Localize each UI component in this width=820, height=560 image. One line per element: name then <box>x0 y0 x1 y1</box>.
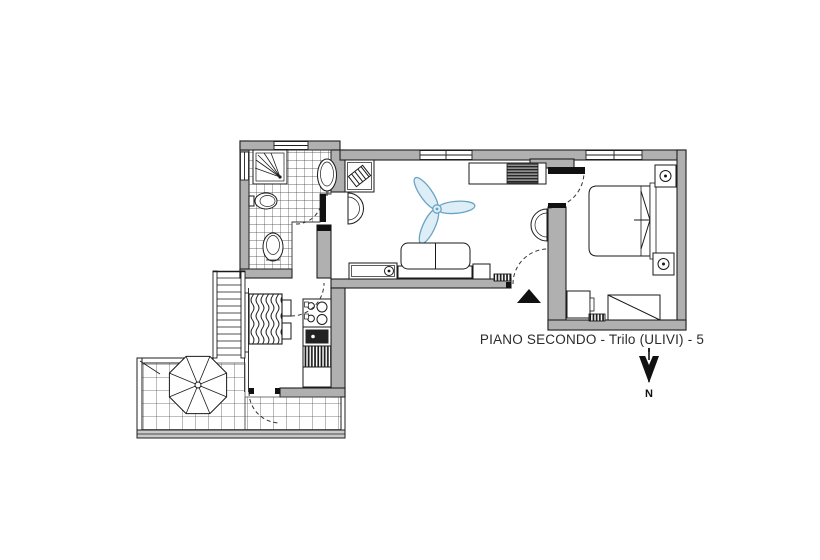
dining-table-icon <box>249 294 291 344</box>
jamb-partition-top <box>548 203 566 208</box>
bedroom <box>567 165 676 321</box>
washing-machine-icon <box>345 160 374 192</box>
jamb-bathroom-lower <box>317 225 331 231</box>
wall-bathroom-bottom <box>240 269 292 278</box>
bathroom-door-leaf <box>320 194 326 222</box>
living-room <box>345 160 547 281</box>
tv-unit-icon <box>349 263 397 279</box>
north-label: N <box>645 388 653 400</box>
floor-plan-page: PIANO SECONDO - Trilo (ULIVI) - 5 N <box>0 0 820 560</box>
radiator-bedroom-icon <box>589 314 605 321</box>
shower-icon <box>253 150 287 184</box>
plan-title: PIANO SECONDO - Trilo (ULIVI) - 5 <box>480 332 704 347</box>
wall-bedroom-bottom <box>548 320 686 330</box>
dishwasher-icon <box>303 346 331 367</box>
window-bathroom-top <box>274 141 308 150</box>
door-swing-bedroom <box>548 172 584 208</box>
staircase-icon <box>213 271 245 358</box>
kitchen <box>249 294 331 387</box>
kitchen-sink-icon <box>303 327 331 346</box>
wardrobe-icon <box>469 163 546 184</box>
kitchen-counter <box>303 367 331 387</box>
window-living-top <box>420 150 472 160</box>
umbrella-icon <box>169 356 226 413</box>
toilet-icon <box>263 233 283 261</box>
lintel-bedroom-door <box>548 167 585 174</box>
window-bedroom-top <box>586 150 642 160</box>
nightstand-bottom <box>653 253 674 275</box>
terrace-tiles <box>245 397 341 430</box>
entrance-arrow-icon <box>517 289 541 303</box>
jamb-terrace-left <box>249 388 254 394</box>
corner-basin-left-icon <box>348 193 364 224</box>
door-swing-entrance <box>513 249 548 284</box>
jamb-terrace-right <box>275 388 280 394</box>
double-bed-icon <box>589 183 656 259</box>
corner-basin-bedroom-wall-icon <box>531 209 547 241</box>
radiator-living-icon <box>494 274 511 281</box>
single-bed-icon <box>608 295 660 320</box>
wall-kitchen-bottom <box>280 388 345 397</box>
jamb-entrance-left <box>506 282 511 288</box>
wall-partition-bedroom <box>548 207 566 330</box>
wall-bedroom-right <box>677 150 686 330</box>
floor-plan-image: PIANO SECONDO - Trilo (ULIVI) - 5 N <box>0 0 820 560</box>
window-bathroom-left <box>240 152 249 180</box>
wall-living-bottom <box>331 279 511 288</box>
wall-bathroom-right-lower <box>317 225 331 278</box>
side-table-icon <box>473 264 490 279</box>
ceiling-fan-icon <box>410 174 475 246</box>
north-arrow-icon: N <box>639 348 659 400</box>
sofa-icon <box>398 243 472 278</box>
wall-kitchen-right <box>331 288 345 397</box>
nightstand-top <box>655 165 676 187</box>
